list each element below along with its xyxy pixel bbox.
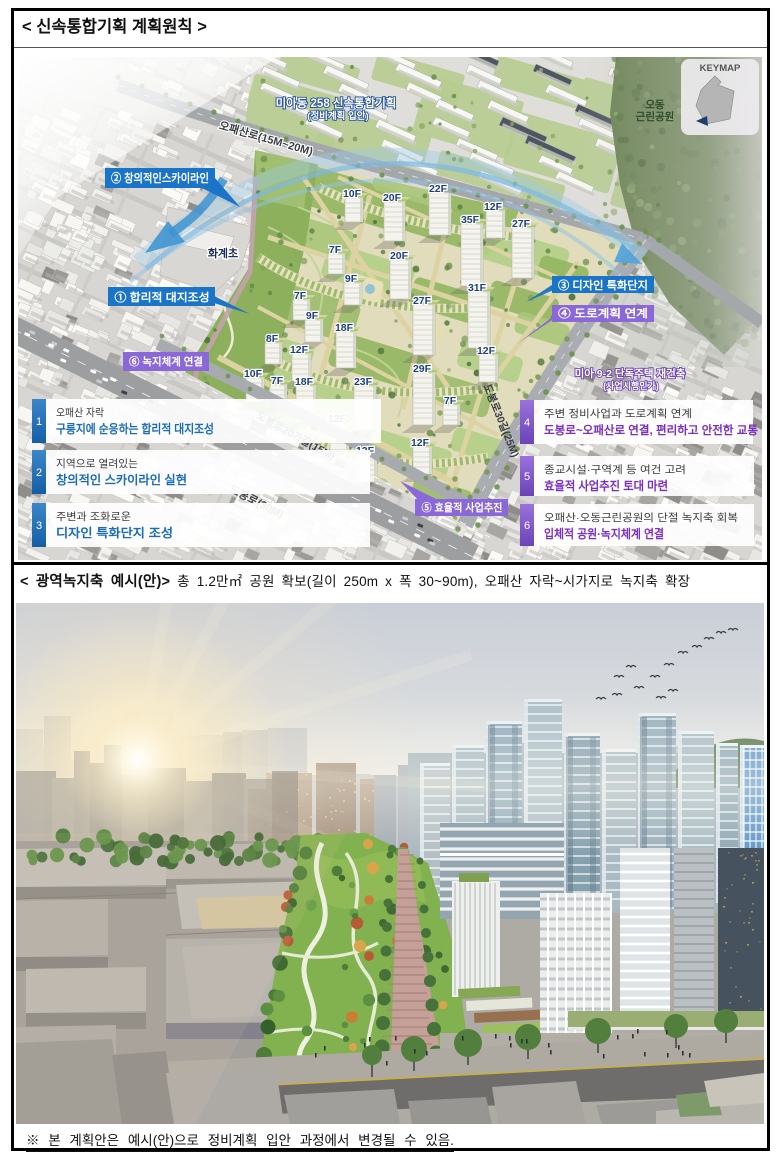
svg-text:입체적 공원·녹지체계 연결: 입체적 공원·녹지체계 연결 <box>544 526 664 541</box>
svg-text:⑥ 녹지체계 연결: ⑥ 녹지체계 연결 <box>129 355 203 368</box>
svg-text:화계초: 화계초 <box>208 246 238 260</box>
svg-text:주변 정비사업과 도로계획 연계: 주변 정비사업과 도로계획 연계 <box>544 407 692 420</box>
svg-text:미아 9-2 단독주택 재건축: 미아 9-2 단독주택 재건축 <box>575 367 686 380</box>
svg-text:12F: 12F <box>477 345 496 357</box>
svg-text:18F: 18F <box>335 322 354 334</box>
svg-text:22F: 22F <box>429 183 448 195</box>
svg-text:종교시설·구역계 등 여건 고려: 종교시설·구역계 등 여건 고려 <box>544 464 686 476</box>
svg-text:효율적 사업추진 토대 마련: 효율적 사업추진 토대 마련 <box>544 478 668 493</box>
svg-text:오패산 자락: 오패산 자락 <box>56 407 104 419</box>
svg-text:오패산·오동근린공원의 단절 녹지축 회복: 오패산·오동근린공원의 단절 녹지축 회복 <box>544 511 738 524</box>
svg-text:29F: 29F <box>413 363 432 375</box>
svg-text:31F: 31F <box>468 282 487 294</box>
svg-text:오동: 오동 <box>645 99 665 111</box>
svg-text:10F: 10F <box>343 188 362 200</box>
svg-text:8F: 8F <box>266 333 279 345</box>
svg-text:(정비계획 입안): (정비계획 입안) <box>307 110 368 122</box>
svg-text:KEYMAP: KEYMAP <box>700 63 741 74</box>
svg-text:근린공원: 근린공원 <box>636 110 675 123</box>
svg-text:(사업시행인가): (사업시행인가) <box>603 380 659 391</box>
svg-text:35F: 35F <box>461 214 480 226</box>
svg-text:1: 1 <box>36 416 42 428</box>
svg-text:9F: 9F <box>306 310 319 322</box>
svg-text:주변과 조화로운: 주변과 조화로운 <box>56 511 131 523</box>
svg-text:27F: 27F <box>512 218 531 230</box>
svg-text:구릉지에 순응하는 합리적 대지조성: 구릉지에 순응하는 합리적 대지조성 <box>56 421 214 436</box>
svg-text:지역으로 열려있는: 지역으로 열려있는 <box>56 458 138 470</box>
svg-text:③ 디자인 특화단지: ③ 디자인 특화단지 <box>558 278 648 292</box>
svg-text:27F: 27F <box>413 295 432 307</box>
svg-text:7F: 7F <box>329 244 342 256</box>
svg-text:4: 4 <box>524 417 530 429</box>
svg-text:23F: 23F <box>354 376 373 388</box>
svg-text:12F: 12F <box>411 437 430 449</box>
svg-text:10F: 10F <box>244 368 263 380</box>
svg-text:20F: 20F <box>383 192 402 204</box>
svg-text:12F: 12F <box>290 344 309 356</box>
svg-text:5: 5 <box>524 471 530 483</box>
svg-text:7F: 7F <box>294 290 307 302</box>
svg-text:6: 6 <box>524 520 530 532</box>
svg-text:3: 3 <box>36 520 42 532</box>
svg-text:12F: 12F <box>484 201 503 213</box>
svg-text:④ 도로계획 연계: ④ 도로계획 연계 <box>558 306 648 320</box>
svg-text:미아동 258 신속통합기획: 미아동 258 신속통합기획 <box>276 96 397 110</box>
svg-text:7F: 7F <box>444 395 457 407</box>
svg-text:7F: 7F <box>271 375 284 387</box>
svg-text:① 합리적 대지조성: ① 합리적 대지조성 <box>115 290 210 304</box>
svg-text:도봉로~오패산로 연결, 편리하고 안전한 교통: 도봉로~오패산로 연결, 편리하고 안전한 교통 <box>544 423 758 437</box>
svg-text:⑤ 효율적 사업추진: ⑤ 효율적 사업추진 <box>422 501 503 514</box>
svg-text:2: 2 <box>36 467 42 479</box>
svg-text:9F: 9F <box>345 273 358 285</box>
svg-text:18F: 18F <box>295 376 314 388</box>
svg-text:② 창의적인스카이라인: ② 창의적인스카이라인 <box>111 171 209 185</box>
svg-text:디자인 특화단지 조성: 디자인 특화단지 조성 <box>56 525 173 540</box>
svg-text:창의적인 스카이라인 실현: 창의적인 스카이라인 실현 <box>56 472 187 487</box>
svg-text:20F: 20F <box>390 250 409 262</box>
